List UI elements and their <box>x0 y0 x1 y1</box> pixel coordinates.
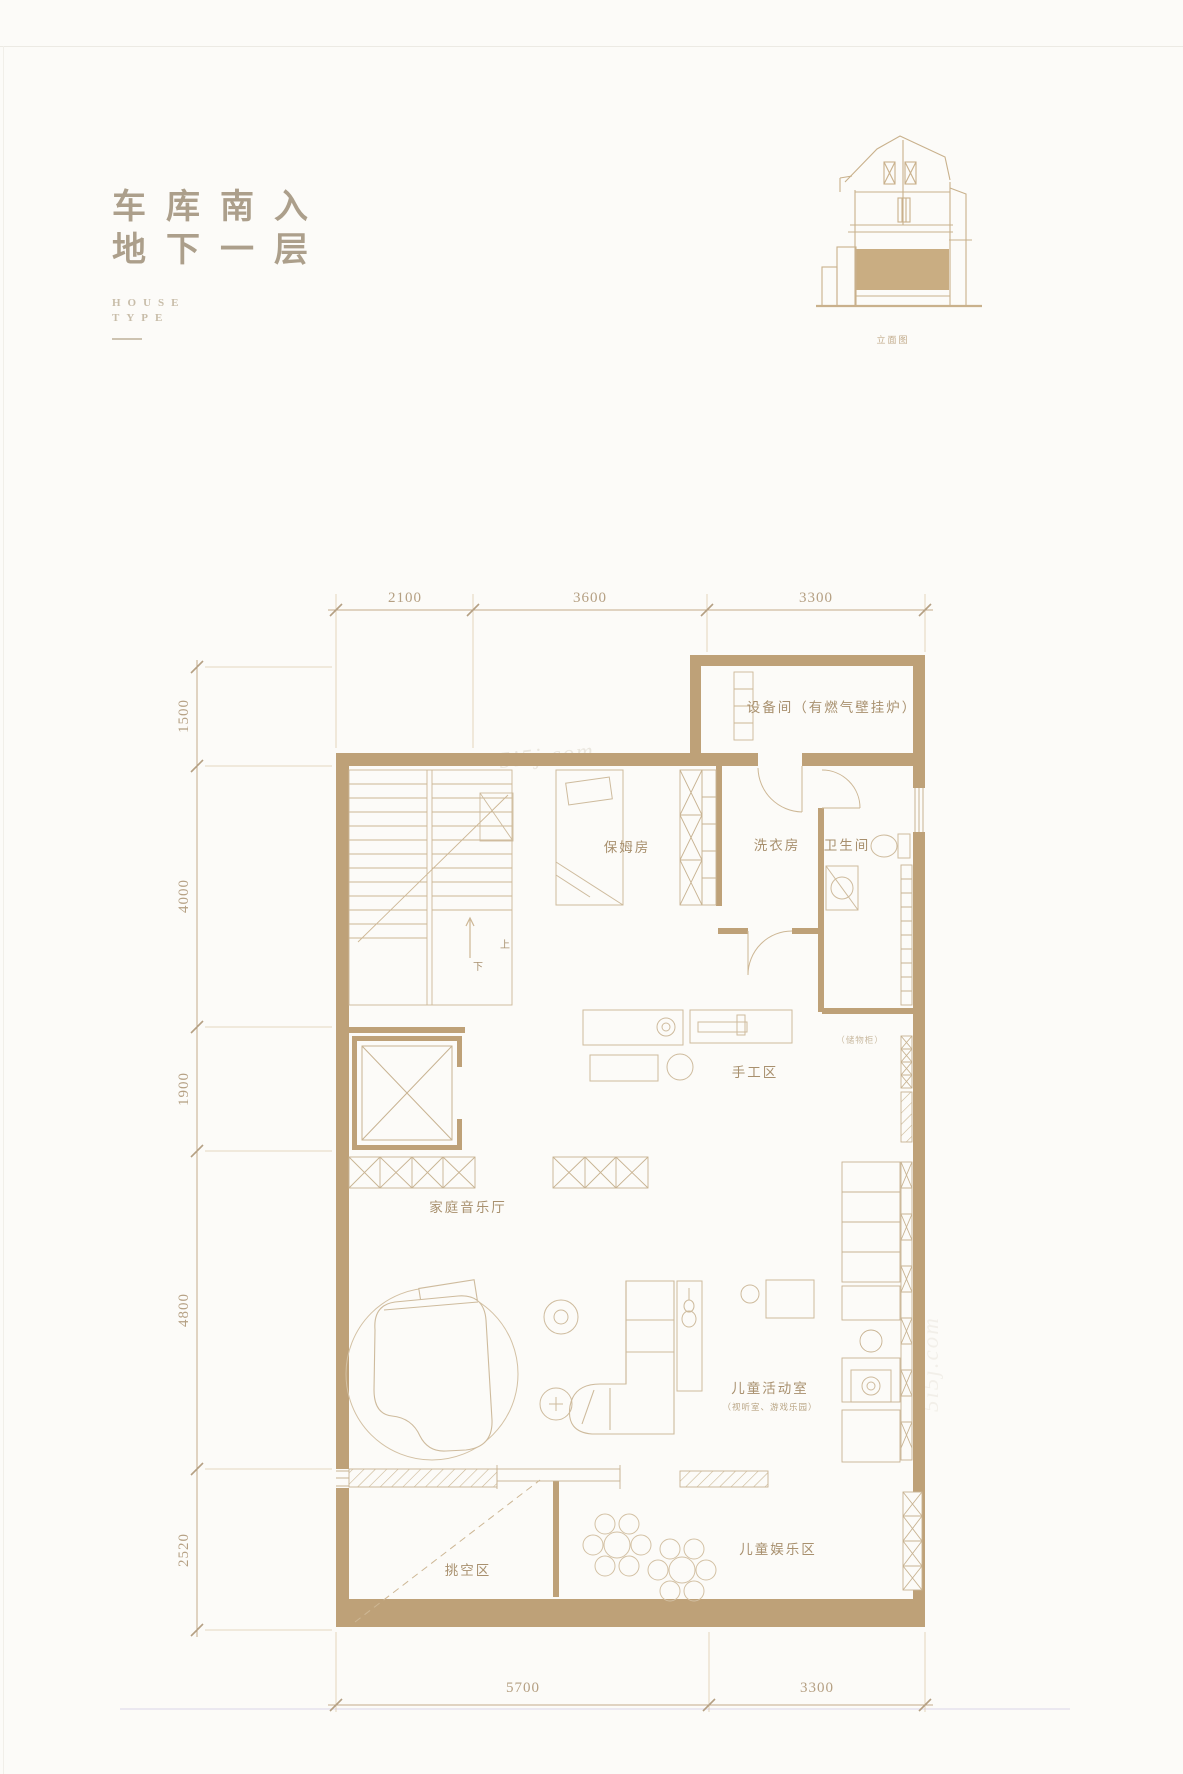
floor-plan-page: 车库南入 地下一层 HOUSE TYPE 5i5j.com 5i5j.com <box>0 0 1183 1774</box>
dimension-lines <box>197 610 933 1705</box>
dim-left-1900: 1900 <box>176 1072 192 1106</box>
right-wardrobe-column <box>842 1162 900 1462</box>
room-label-nanny: 保姆房 <box>604 840 651 855</box>
dim-left-2520: 2520 <box>176 1533 192 1567</box>
room-label-kids-activity: 儿童活动室 <box>731 1380 809 1396</box>
dim-left-4800: 4800 <box>176 1293 192 1327</box>
dim-bottom-5700: 5700 <box>506 1680 540 1696</box>
elevation-caption: 立面图 <box>876 334 909 345</box>
house-type-caption: HOUSE TYPE <box>112 296 328 326</box>
dimension-labels-top: 2100 3600 3300 <box>388 590 833 606</box>
room-label-laundry: 洗衣房 <box>754 838 801 853</box>
flower-table-1 <box>583 1514 651 1576</box>
room-note-kids-activity: （视听室、游戏乐园） <box>722 1402 817 1412</box>
nanny-wardrobe <box>680 770 716 905</box>
room-label-craft: 手工区 <box>732 1065 779 1080</box>
grand-piano <box>374 1280 492 1451</box>
bathroom-toilet <box>871 834 910 858</box>
stairs-up-label: 上 <box>500 939 510 951</box>
dim-bottom-3300: 3300 <box>800 1680 834 1696</box>
flower-table-2 <box>648 1539 716 1601</box>
page-left-hairline <box>3 46 4 1774</box>
house-type-line1: HOUSE <box>112 296 328 311</box>
room-label-music-hall: 家庭音乐厅 <box>429 1199 507 1215</box>
dim-top-3600: 3600 <box>573 590 607 606</box>
low-cabinet-strip-left <box>349 1157 475 1188</box>
dimension-labels-bottom: 5700 3300 <box>506 1680 834 1696</box>
bathroom-window <box>913 788 925 832</box>
dim-left-4000: 4000 <box>176 879 192 913</box>
bathroom-sink <box>826 866 858 910</box>
bottom-right-ladder <box>903 1492 922 1590</box>
right-wall-ladder <box>901 1162 912 1460</box>
elevator-shaft <box>362 1046 452 1140</box>
nanny-bed <box>556 770 623 905</box>
title-block: 车库南入 地下一层 HOUSE TYPE <box>112 186 328 340</box>
chaise-with-guitar <box>677 1281 702 1391</box>
staircase <box>349 770 512 1005</box>
dimension-labels-left: 1500 4000 1900 4800 2520 <box>176 699 192 1567</box>
door-arcs <box>748 766 860 975</box>
kids-activity-table <box>741 1280 814 1318</box>
cabinet-note: （储物柜） <box>836 1035 884 1045</box>
curved-sofa <box>569 1281 674 1434</box>
elevation-section <box>816 136 982 306</box>
left-wall-window <box>336 1469 349 1488</box>
dim-left-1500: 1500 <box>176 699 192 733</box>
dim-top-2100: 2100 <box>388 590 422 606</box>
bathroom-towel-ladder <box>901 865 912 1005</box>
page-top-hairline <box>0 46 1183 47</box>
stairs-down-label: 下 <box>473 962 483 973</box>
page-title-line2: 地下一层 <box>112 229 328 272</box>
page-title-line1: 车库南入 <box>112 186 328 229</box>
room-label-bathroom: 卫生间 <box>824 838 871 853</box>
elevation-basement-band <box>856 249 949 290</box>
house-type-line2: TYPE <box>112 311 328 326</box>
room-label-kids-play: 儿童娱乐区 <box>739 1541 817 1557</box>
dim-top-3300: 3300 <box>799 590 833 606</box>
right-wall-cabinet-upper <box>901 1036 912 1142</box>
toy-box <box>851 1370 891 1402</box>
title-underline-dash <box>112 338 142 340</box>
room-label-equipment: 设备间（有燃气壁挂炉） <box>747 699 918 715</box>
room-label-void: 挑空区 <box>445 1563 492 1578</box>
low-cabinet-strip-center <box>553 1157 648 1188</box>
music-stools <box>540 1300 578 1420</box>
